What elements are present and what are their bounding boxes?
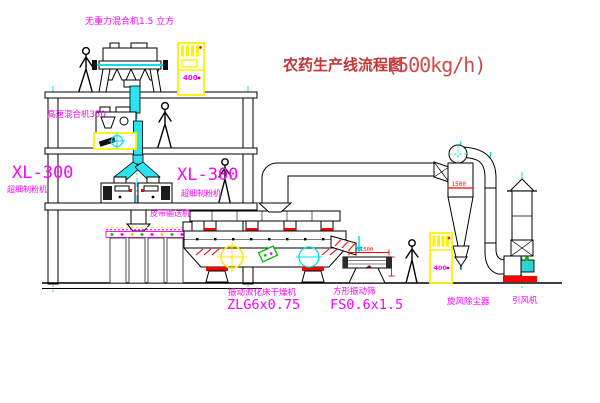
screen-base bbox=[349, 268, 385, 283]
label-screen-model: FS0.6x1.5 bbox=[330, 297, 403, 313]
person-top-floor bbox=[79, 48, 92, 91]
label-high-speed-mixer: 高速混合机350 bbox=[47, 109, 106, 120]
pesticide-line-flow-diagram: 400 bbox=[0, 0, 600, 403]
diagram-title: 农药生产线流程图 bbox=[282, 56, 403, 74]
cabinet-display-text: 400 bbox=[434, 264, 448, 272]
control-cabinet-top: 400 bbox=[178, 43, 204, 95]
control-cabinet-ground: 400 bbox=[430, 233, 452, 283]
label-belt-conveyor: 皮带输送机 bbox=[150, 208, 190, 218]
column-left bbox=[48, 92, 58, 284]
conveyor-support-legs bbox=[110, 238, 183, 283]
flow-diagram-canvas: 400 bbox=[0, 0, 600, 403]
screen-dimension-text: 1500 bbox=[360, 247, 373, 253]
cyclone-dimension-text: 1500 bbox=[452, 181, 467, 188]
label-mill-left-model: XL-300 bbox=[12, 163, 73, 183]
dryer-ports bbox=[204, 221, 333, 231]
indicator-dot bbox=[199, 46, 202, 49]
fluid-bed-dryer bbox=[183, 211, 346, 282]
fan-motor bbox=[521, 260, 534, 272]
gravity-free-mixer bbox=[92, 43, 168, 92]
label-mill-left-name: 超细制粉机 bbox=[7, 184, 47, 194]
floor-slab-top bbox=[45, 92, 257, 98]
floor-slab-mid bbox=[45, 148, 257, 154]
fan-suction-pipe bbox=[485, 188, 506, 274]
label-fan: 引风机 bbox=[512, 295, 538, 306]
induced-draft-fan bbox=[503, 256, 537, 282]
label-screen-name: 方形振动筛 bbox=[333, 286, 376, 297]
person-mid-floor bbox=[158, 103, 171, 147]
person-ground bbox=[406, 240, 418, 283]
label-dryer-model: ZLG6x0.75 bbox=[227, 297, 300, 313]
diagram-title-capacity: (500kg/h) bbox=[386, 53, 485, 77]
vibrating-screen: 1500 bbox=[331, 236, 395, 283]
label-mill-right-model: XL-300 bbox=[177, 165, 238, 185]
label-cyclone: 旋风除尘器 bbox=[447, 296, 490, 307]
fan-base bbox=[503, 276, 537, 282]
indicator-dot bbox=[198, 77, 201, 80]
ultrafine-mill-left bbox=[101, 177, 135, 203]
mixer-base-highlight bbox=[94, 133, 136, 149]
exhaust-duct bbox=[259, 162, 449, 212]
indicator-dot bbox=[448, 237, 451, 240]
cabinet-display-text: 400 bbox=[183, 74, 198, 82]
belt-conveyor bbox=[106, 228, 192, 238]
indicator-dot bbox=[447, 267, 450, 270]
ultrafine-mill-right bbox=[138, 177, 172, 203]
label-mill-right-name: 超细制粉机 bbox=[181, 188, 221, 198]
label-gravity-mixer: 无重力混合机1.5 立方 bbox=[85, 15, 174, 27]
feed-pipe-vertical bbox=[130, 86, 140, 113]
exhaust-stack bbox=[507, 179, 537, 256]
